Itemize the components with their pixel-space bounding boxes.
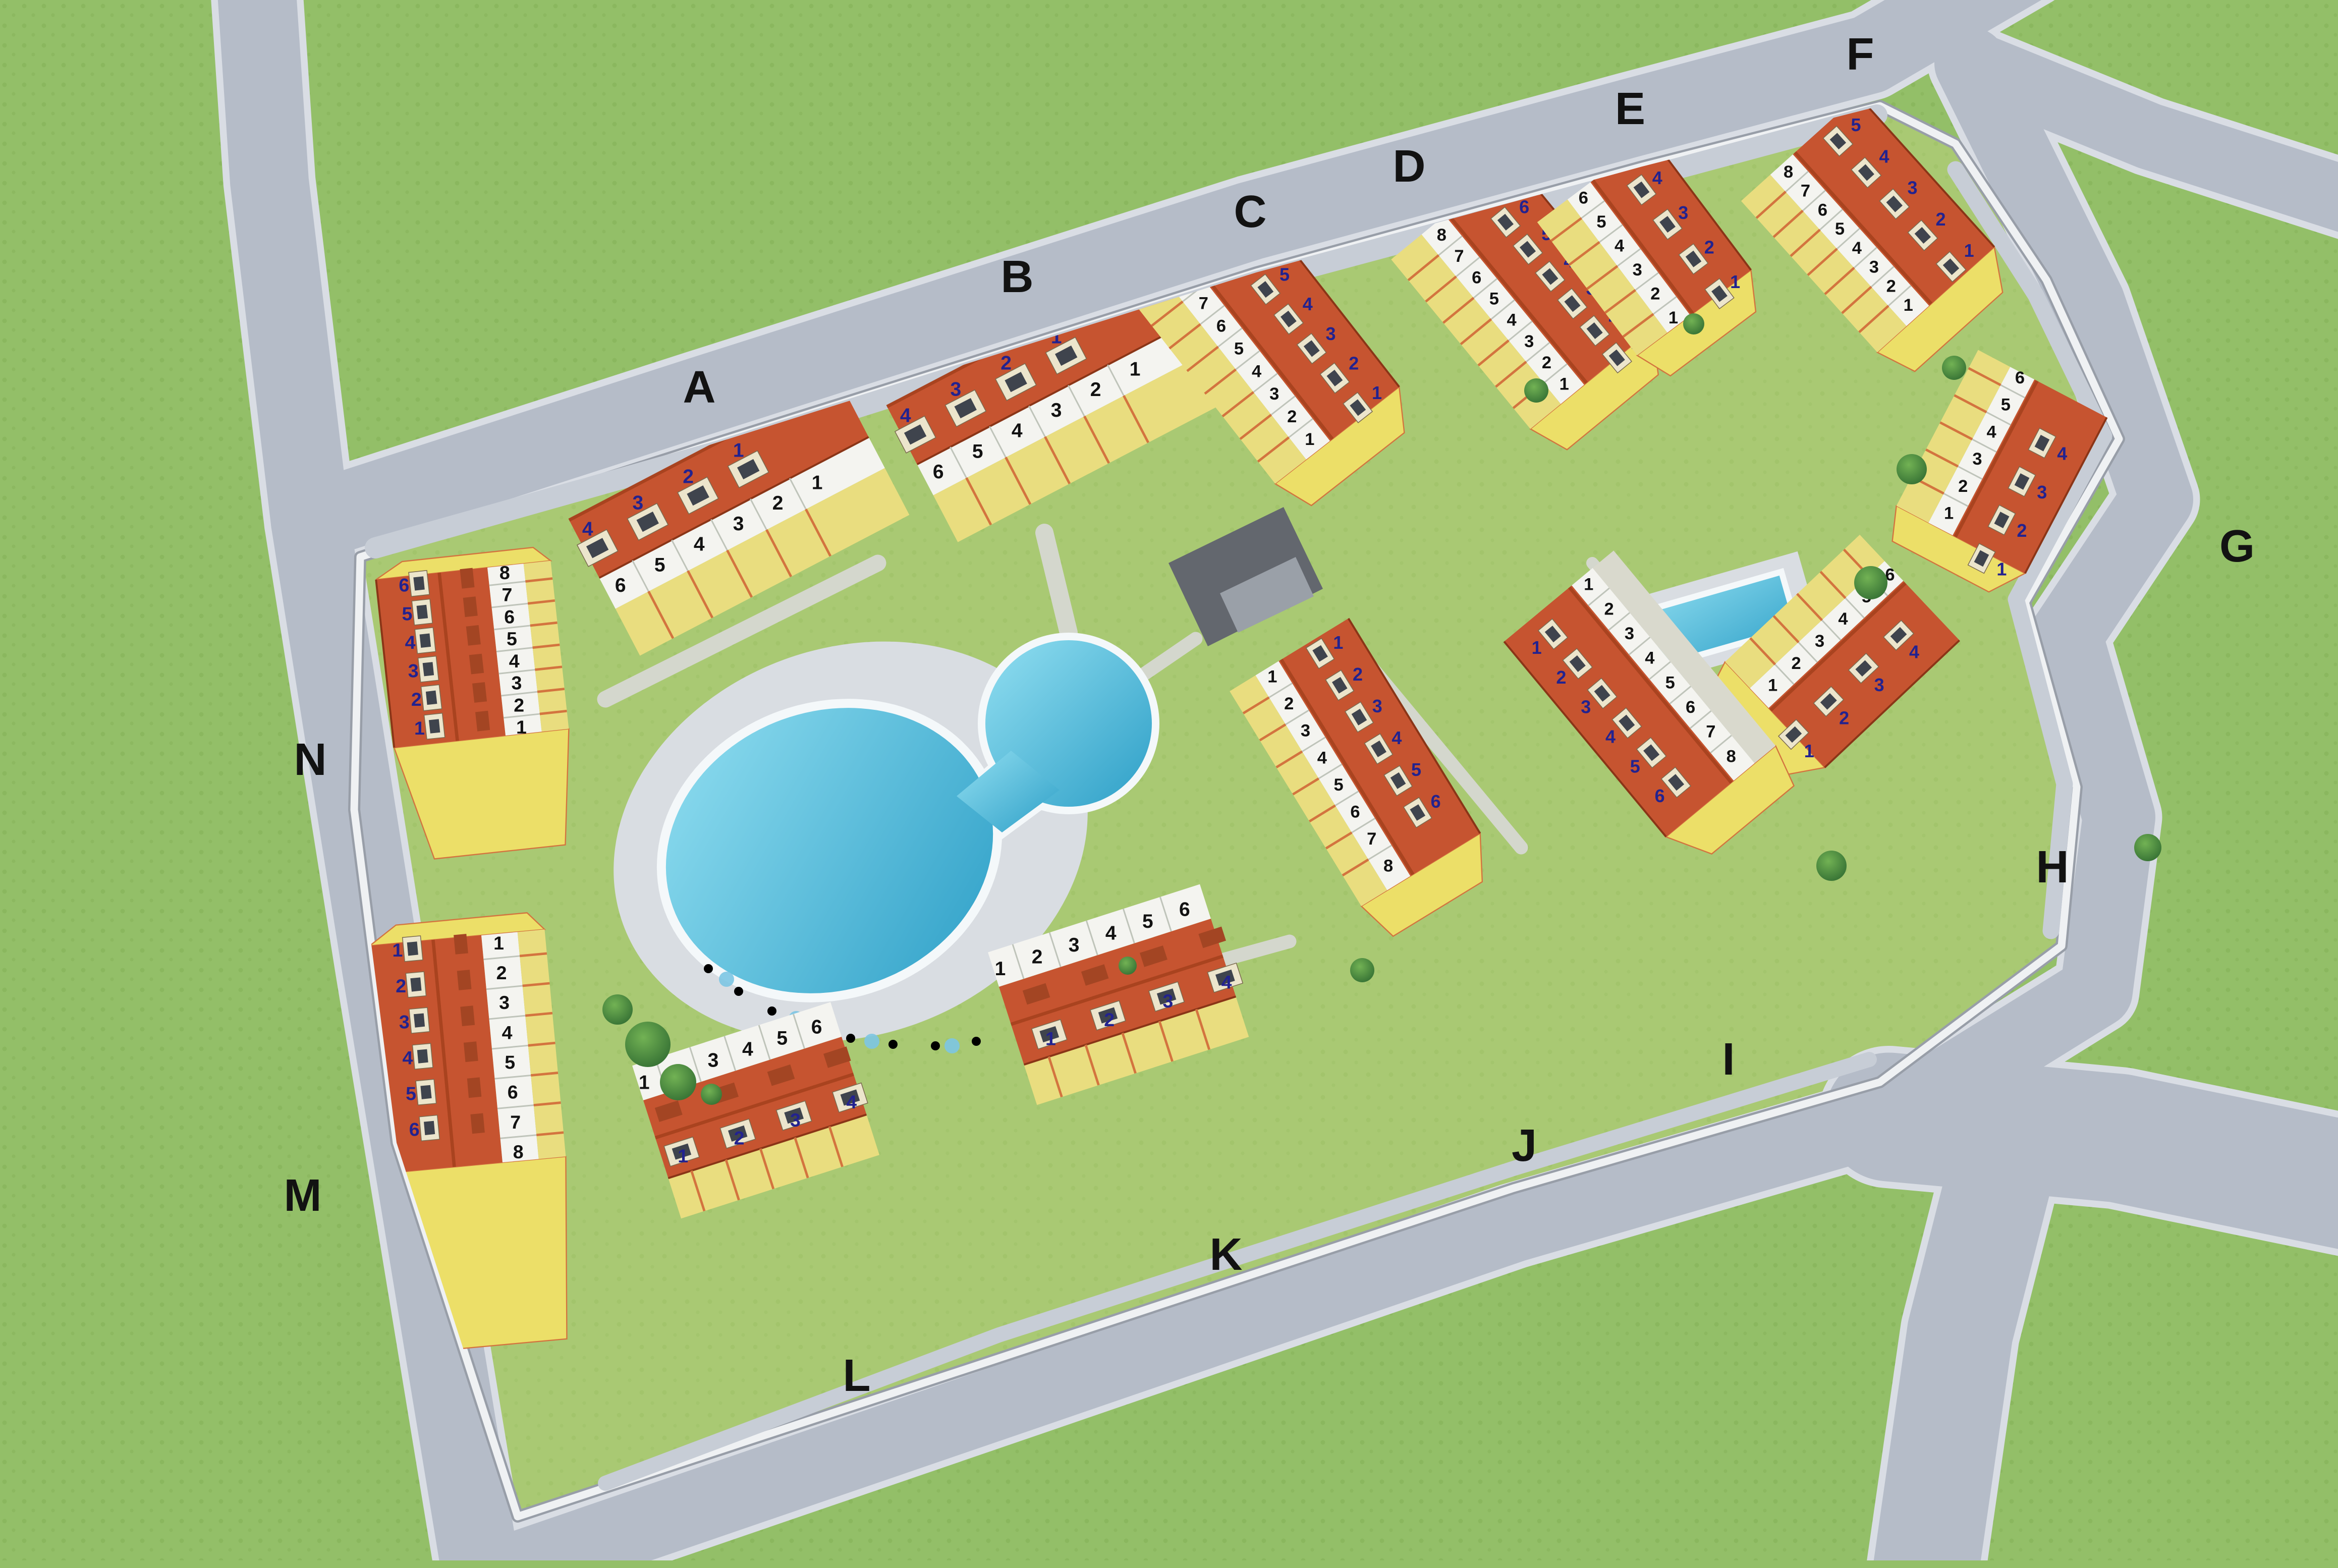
unit-number-blue: 6 <box>399 575 409 596</box>
unit-number-blue: 4 <box>846 1091 857 1112</box>
unit-number-black: 6 <box>1179 899 1190 921</box>
unit-number-black: 4 <box>502 1022 513 1043</box>
unit-number-blue: 4 <box>1391 727 1402 748</box>
tree <box>660 1064 696 1100</box>
building-label-J: J <box>1512 1121 1537 1171</box>
unit-number-black: 1 <box>1904 296 1913 315</box>
unit-number-black: 4 <box>742 1039 753 1060</box>
tree <box>1683 313 1704 334</box>
dormer-back <box>472 682 487 703</box>
lounger <box>704 964 713 973</box>
unit-number-blue: 3 <box>1678 202 1688 223</box>
building-label-K: K <box>1210 1229 1243 1280</box>
unit-number-blue: 5 <box>406 1083 416 1104</box>
unit-number-black: 6 <box>508 1082 518 1103</box>
unit-number-black: 4 <box>1012 420 1023 442</box>
unit-number-black: 1 <box>1267 667 1277 687</box>
unit-number-black: 3 <box>1972 450 1982 469</box>
unit-number-black: 2 <box>1284 694 1294 713</box>
dormer-back <box>463 596 478 617</box>
unit-number-blue: 4 <box>1605 726 1616 747</box>
unit-number-black: 3 <box>733 513 744 535</box>
unit-number-blue: 3 <box>2037 482 2047 502</box>
unit-number-black: 6 <box>615 575 626 596</box>
tree <box>1942 356 1966 380</box>
unit-number-black: 7 <box>1199 294 1208 313</box>
unit-number-black: 5 <box>1334 775 1344 795</box>
unit-number-blue: 3 <box>1162 990 1173 1012</box>
unit-number-blue: 1 <box>733 439 744 461</box>
unit-number-blue: 1 <box>1372 382 1382 403</box>
unit-number-black: 1 <box>516 716 527 738</box>
unit-number-blue: 4 <box>402 1047 413 1068</box>
unit-number-black: 3 <box>1524 332 1534 351</box>
tree <box>1524 378 1548 403</box>
tree <box>602 994 633 1025</box>
tree <box>1816 851 1847 881</box>
lounger <box>767 1006 776 1016</box>
unit-number-blue: 4 <box>1909 641 1919 662</box>
dormer-window <box>417 605 428 620</box>
unit-number-blue: 2 <box>683 466 694 487</box>
unit-number-black: 2 <box>1958 477 1968 496</box>
unit-number-black: 4 <box>694 534 705 555</box>
building-label-C: C <box>1234 187 1267 237</box>
unit-number-blue: 6 <box>1431 791 1441 812</box>
dormer-window <box>420 1085 431 1099</box>
unit-number-black: 7 <box>1454 247 1464 266</box>
unit-number-black: 8 <box>1383 856 1393 875</box>
unit-number-black: 1 <box>995 958 1006 980</box>
unit-number-blue: 3 <box>408 660 419 682</box>
dormer-back <box>470 1113 485 1134</box>
dormer-window <box>417 1049 428 1063</box>
unit-number-black: 4 <box>1852 239 1862 258</box>
unit-number-black: 3 <box>1301 721 1310 741</box>
unit-number-blue: 1 <box>1730 271 1740 292</box>
dormer-back <box>460 1005 475 1026</box>
dormer-back <box>475 711 490 732</box>
unit-number-blue: 2 <box>2017 520 2027 541</box>
unit-number-black: 6 <box>1472 268 1481 287</box>
building-label-I: I <box>1722 1034 1735 1085</box>
unit-number-black: 2 <box>1542 353 1551 372</box>
unit-number-black: 5 <box>507 628 517 649</box>
site-plan-canvas: 6543214321654321432187654321654321876543… <box>0 0 2338 1560</box>
unit-number-black: 4 <box>1317 748 1327 767</box>
unit-number-blue: 2 <box>1000 352 1012 374</box>
building-label-A: A <box>683 362 716 413</box>
unit-number-blue: 1 <box>1333 632 1343 653</box>
unit-number-black: 1 <box>1944 504 1954 523</box>
unit-number-black: 5 <box>2001 396 2011 415</box>
unit-number-blue: 4 <box>900 405 911 427</box>
unit-number-blue: 3 <box>951 378 962 400</box>
lounger <box>972 1037 981 1046</box>
umbrella <box>944 1038 960 1053</box>
unit-number-black: 1 <box>1768 676 1777 695</box>
unit-number-black: 6 <box>1686 698 1695 717</box>
unit-number-black: 8 <box>1784 162 1793 182</box>
unit-number-blue: 4 <box>582 519 593 540</box>
unit-number-black: 5 <box>972 440 983 462</box>
unit-number-black: 8 <box>499 562 510 583</box>
dormer-window <box>410 977 421 991</box>
unit-number-black: 5 <box>654 554 665 576</box>
unit-number-blue: 2 <box>1353 664 1363 685</box>
unit-number-black: 1 <box>1305 430 1314 449</box>
unit-number-black: 3 <box>499 992 510 1013</box>
building-label-G: G <box>2219 521 2255 572</box>
lounger <box>888 1040 898 1049</box>
unit-number-blue: 2 <box>734 1128 745 1149</box>
unit-number-blue: 3 <box>1372 696 1382 716</box>
unit-number-black: 1 <box>1584 575 1593 594</box>
unit-number-black: 5 <box>1835 219 1845 239</box>
dormer-back <box>469 654 484 675</box>
unit-number-blue: 1 <box>1532 637 1542 658</box>
unit-number-black: 3 <box>1269 384 1279 404</box>
unit-number-blue: 2 <box>1704 237 1714 257</box>
tree <box>625 1022 671 1067</box>
unit-number-black: 4 <box>1615 236 1624 255</box>
unit-number-black: 3 <box>1069 934 1080 956</box>
unit-number-blue: 1 <box>414 717 425 739</box>
dormer-window <box>414 1014 425 1028</box>
unit-number-blue: 6 <box>1655 786 1665 806</box>
unit-number-black: 4 <box>1105 923 1117 944</box>
unit-number-blue: 5 <box>1411 759 1421 780</box>
unit-number-black: 6 <box>1579 188 1588 207</box>
unit-number-black: 6 <box>933 461 944 483</box>
unit-number-black: 2 <box>1604 599 1614 619</box>
tree <box>1119 957 1137 975</box>
building-label-H: H <box>2036 842 2069 892</box>
umbrella <box>864 1034 879 1049</box>
tree <box>701 1084 722 1105</box>
unit-number-black: 6 <box>1350 802 1360 821</box>
dormer-window <box>407 941 418 956</box>
dormer-window <box>424 1121 435 1135</box>
dormer-back <box>460 568 474 589</box>
unit-number-blue: 1 <box>678 1145 688 1166</box>
unit-number-black: 7 <box>502 584 513 605</box>
unit-number-blue: 2 <box>411 689 422 710</box>
unit-number-black: 2 <box>1886 276 1896 296</box>
unit-number-blue: 3 <box>1874 675 1884 695</box>
unit-number-blue: 4 <box>1221 972 1232 993</box>
unit-number-black: 4 <box>509 650 520 671</box>
building-label-L: L <box>843 1351 871 1401</box>
unit-number-black: 3 <box>1869 258 1879 277</box>
unit-number-blue: 3 <box>633 492 644 514</box>
unit-number-black: 3 <box>1633 260 1642 279</box>
tree <box>1350 958 1374 982</box>
unit-number-blue: 3 <box>790 1109 801 1131</box>
unit-number-black: 1 <box>812 472 823 493</box>
unit-number-black: 3 <box>1625 624 1634 643</box>
unit-number-black: 6 <box>1818 200 1827 219</box>
dormer-back <box>467 1077 482 1098</box>
unit-number-blue: 3 <box>1326 323 1336 344</box>
unit-number-black: 5 <box>1234 339 1244 358</box>
unit-number-black: 8 <box>513 1141 524 1162</box>
building-label-M: M <box>284 1170 322 1221</box>
lounger <box>846 1034 855 1043</box>
unit-number-black: 6 <box>2015 368 2025 387</box>
unit-number-black: 7 <box>1801 182 1810 201</box>
unit-number-blue: 5 <box>1279 264 1290 285</box>
unit-number-black: 4 <box>1507 311 1516 330</box>
unit-number-blue: 5 <box>1851 115 1861 135</box>
unit-number-black: 4 <box>1252 362 1261 381</box>
unit-number-black: 2 <box>1287 407 1297 426</box>
unit-number-blue: 5 <box>402 603 412 624</box>
tree <box>2134 834 2161 861</box>
unit-number-blue: 4 <box>2057 443 2067 464</box>
dormer-window <box>420 634 431 648</box>
dormer-window <box>426 691 437 705</box>
unit-number-black: 1 <box>1668 308 1678 327</box>
building-label-D: D <box>1393 141 1426 192</box>
unit-number-black: 2 <box>496 962 507 983</box>
unit-number-black: 7 <box>1367 829 1376 849</box>
unit-number-blue: 5 <box>1630 756 1640 776</box>
lounger <box>734 987 743 996</box>
unit-number-black: 2 <box>514 694 524 715</box>
unit-number-black: 4 <box>1645 649 1654 668</box>
unit-number-blue: 2 <box>1839 708 1849 729</box>
unit-number-black: 8 <box>1437 226 1446 245</box>
unit-number-blue: 1 <box>1964 240 1974 261</box>
unit-number-black: 6 <box>504 606 515 627</box>
building-label-F: F <box>1847 29 1874 80</box>
unit-number-blue: 2 <box>1936 209 1946 230</box>
unit-number-blue: 1 <box>1045 1028 1056 1049</box>
dormer-back <box>457 970 472 990</box>
unit-number-blue: 2 <box>1104 1009 1115 1030</box>
dormer-window <box>413 576 425 590</box>
dormer-window <box>429 719 440 734</box>
unit-number-black: 7 <box>1706 722 1715 742</box>
unit-number-black: 1 <box>639 1072 650 1093</box>
unit-number-black: 3 <box>708 1049 719 1071</box>
unit-number-black: 3 <box>511 673 522 694</box>
unit-number-blue: 4 <box>1879 146 1889 166</box>
unit-number-blue: 3 <box>1581 697 1591 717</box>
unit-number-blue: 1 <box>1804 741 1814 761</box>
dormer-back <box>464 1041 478 1062</box>
unit-number-black: 6 <box>811 1017 822 1038</box>
lounger <box>931 1041 940 1050</box>
unit-number-black: 5 <box>776 1028 788 1049</box>
unit-number-blue: 2 <box>396 975 406 996</box>
unit-number-black: 3 <box>1051 400 1062 421</box>
unit-number-black: 6 <box>1216 317 1226 336</box>
dormer-window <box>423 662 434 676</box>
unit-number-black: 1 <box>1560 374 1569 394</box>
unit-number-blue: 3 <box>399 1011 410 1032</box>
unit-number-blue: 2 <box>1556 667 1566 688</box>
building-label-N: N <box>294 735 327 785</box>
unit-number-black: 7 <box>510 1111 521 1133</box>
unit-number-black: 5 <box>1142 911 1153 932</box>
unit-number-black: 2 <box>772 492 784 514</box>
unit-number-blue: 2 <box>1349 353 1359 373</box>
building-label-B: B <box>1001 252 1034 302</box>
site-plan: 6543214321654321432187654321654321876543… <box>0 0 2338 1560</box>
unit-number-blue: 4 <box>1303 294 1313 314</box>
unit-number-black: 1 <box>1130 358 1141 380</box>
unit-number-black: 2 <box>1792 654 1801 673</box>
dormer-back <box>466 625 481 646</box>
unit-number-black: 2 <box>1650 284 1660 303</box>
unit-number-black: 5 <box>1665 673 1675 692</box>
unit-number-black: 5 <box>505 1052 515 1073</box>
unit-number-black: 1 <box>493 932 504 954</box>
unit-number-black: 5 <box>1489 289 1499 308</box>
unit-number-black: 4 <box>1838 609 1848 629</box>
unit-number-blue: 1 <box>393 939 403 961</box>
unit-number-black: 8 <box>1727 747 1736 766</box>
unit-number-black: 2 <box>1032 946 1043 968</box>
unit-number-blue: 6 <box>409 1119 420 1140</box>
unit-number-blue: 4 <box>405 632 416 653</box>
unit-number-black: 3 <box>1815 632 1824 651</box>
building-label-E: E <box>1615 84 1645 134</box>
umbrella <box>719 972 734 987</box>
unit-number-blue: 4 <box>1652 167 1662 188</box>
unit-number-blue: 3 <box>1908 178 1918 198</box>
unit-number-black: 5 <box>1596 212 1606 232</box>
tree <box>1854 566 1887 599</box>
unit-number-black: 2 <box>1090 379 1101 401</box>
tree <box>1897 454 1927 484</box>
unit-number-blue: 1 <box>1996 558 2007 579</box>
dormer-back <box>454 934 468 955</box>
unit-number-black: 4 <box>1987 422 1996 441</box>
